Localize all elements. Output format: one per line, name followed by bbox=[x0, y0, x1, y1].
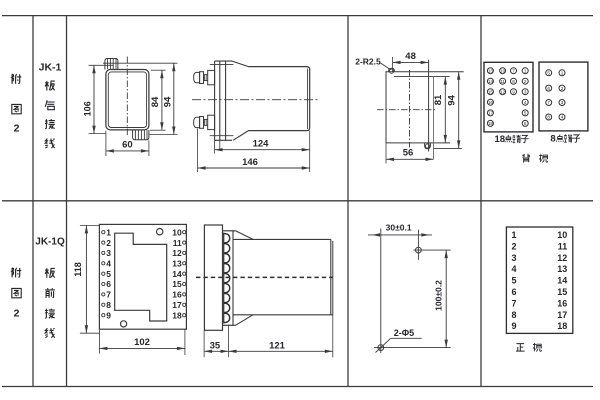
svg-text:2: 2 bbox=[561, 86, 564, 91]
svg-text:15: 15 bbox=[488, 89, 494, 94]
svg-text:56: 56 bbox=[403, 147, 414, 158]
svg-text:1: 1 bbox=[512, 230, 517, 240]
svg-text:13: 13 bbox=[488, 68, 494, 73]
svg-text:2-R2.5: 2-R2.5 bbox=[355, 56, 381, 66]
svg-text:16: 16 bbox=[557, 298, 567, 308]
svg-text:121: 121 bbox=[269, 340, 286, 351]
svg-text:4: 4 bbox=[106, 259, 111, 269]
svg-text:2-Φ5: 2-Φ5 bbox=[394, 328, 414, 338]
svg-text:JK-1: JK-1 bbox=[39, 62, 62, 74]
svg-text:5: 5 bbox=[106, 269, 111, 279]
svg-text:48: 48 bbox=[405, 51, 416, 62]
svg-text:2: 2 bbox=[14, 307, 20, 319]
svg-text:94: 94 bbox=[446, 95, 457, 106]
svg-text:10: 10 bbox=[557, 230, 567, 240]
svg-text:6: 6 bbox=[106, 279, 111, 289]
svg-text:JK-1Q: JK-1Q bbox=[35, 237, 65, 248]
svg-text:3: 3 bbox=[524, 89, 527, 94]
svg-text:1: 1 bbox=[106, 227, 111, 237]
svg-text:18: 18 bbox=[495, 134, 506, 145]
svg-text:17: 17 bbox=[172, 300, 182, 310]
svg-text:9: 9 bbox=[106, 310, 111, 320]
svg-text:12: 12 bbox=[500, 89, 506, 94]
svg-text:7: 7 bbox=[512, 68, 515, 73]
svg-text:7: 7 bbox=[106, 290, 111, 300]
svg-text:12: 12 bbox=[172, 248, 182, 258]
svg-text:14: 14 bbox=[557, 276, 567, 286]
svg-text:13: 13 bbox=[172, 259, 182, 269]
svg-text:16: 16 bbox=[172, 290, 182, 300]
svg-text:5: 5 bbox=[547, 71, 550, 76]
svg-text:1: 1 bbox=[561, 71, 564, 76]
svg-text:100±0.2: 100±0.2 bbox=[434, 280, 444, 311]
svg-text:8: 8 bbox=[106, 300, 111, 310]
svg-text:2: 2 bbox=[106, 238, 111, 248]
svg-text:30±0.1: 30±0.1 bbox=[386, 223, 412, 233]
svg-text:6: 6 bbox=[512, 287, 517, 297]
svg-text:14: 14 bbox=[172, 269, 182, 279]
svg-text:94: 94 bbox=[163, 96, 174, 107]
svg-text:9: 9 bbox=[512, 321, 517, 331]
svg-text:17: 17 bbox=[557, 310, 567, 320]
svg-text:102: 102 bbox=[134, 337, 150, 348]
svg-text:2: 2 bbox=[512, 242, 517, 252]
svg-text:14: 14 bbox=[488, 79, 494, 84]
svg-text:7: 7 bbox=[512, 298, 517, 308]
svg-text:2: 2 bbox=[524, 79, 527, 84]
svg-text:1: 1 bbox=[524, 68, 527, 73]
svg-text:3: 3 bbox=[512, 253, 517, 263]
svg-text:4: 4 bbox=[512, 264, 517, 274]
svg-text:81: 81 bbox=[433, 94, 444, 105]
svg-text:124: 124 bbox=[253, 139, 270, 150]
svg-text:9: 9 bbox=[512, 89, 515, 94]
svg-text:3: 3 bbox=[561, 100, 564, 105]
svg-text:5: 5 bbox=[512, 276, 517, 286]
svg-text:3: 3 bbox=[106, 248, 111, 258]
svg-text:6: 6 bbox=[547, 86, 550, 91]
svg-text:35: 35 bbox=[210, 340, 221, 351]
svg-text:11: 11 bbox=[173, 238, 182, 248]
svg-text:2: 2 bbox=[14, 123, 20, 135]
svg-text:106: 106 bbox=[83, 101, 93, 116]
svg-text:84: 84 bbox=[150, 96, 161, 107]
svg-text:12: 12 bbox=[557, 253, 567, 263]
svg-text:7: 7 bbox=[547, 100, 550, 105]
svg-text:8: 8 bbox=[547, 115, 550, 120]
svg-text:5: 5 bbox=[524, 111, 527, 116]
svg-text:118: 118 bbox=[73, 262, 83, 277]
svg-text:16: 16 bbox=[488, 100, 494, 105]
svg-text:13: 13 bbox=[557, 264, 567, 274]
svg-text:11: 11 bbox=[500, 79, 505, 84]
svg-text:17: 17 bbox=[488, 111, 494, 116]
svg-text:10: 10 bbox=[500, 68, 506, 73]
svg-text:15: 15 bbox=[172, 279, 182, 289]
svg-text:18: 18 bbox=[557, 321, 567, 331]
svg-text:4: 4 bbox=[561, 115, 564, 120]
svg-text:6: 6 bbox=[524, 121, 527, 126]
svg-text:10: 10 bbox=[172, 227, 182, 237]
svg-text:4: 4 bbox=[524, 100, 527, 105]
svg-text:8: 8 bbox=[550, 134, 555, 145]
svg-text:8: 8 bbox=[512, 310, 517, 320]
svg-text:11: 11 bbox=[558, 242, 568, 252]
svg-text:8: 8 bbox=[512, 79, 515, 84]
svg-text:60: 60 bbox=[122, 140, 133, 151]
svg-text:18: 18 bbox=[488, 121, 494, 126]
svg-text:15: 15 bbox=[557, 287, 567, 297]
svg-text:146: 146 bbox=[242, 157, 258, 168]
svg-text:18: 18 bbox=[172, 310, 182, 320]
